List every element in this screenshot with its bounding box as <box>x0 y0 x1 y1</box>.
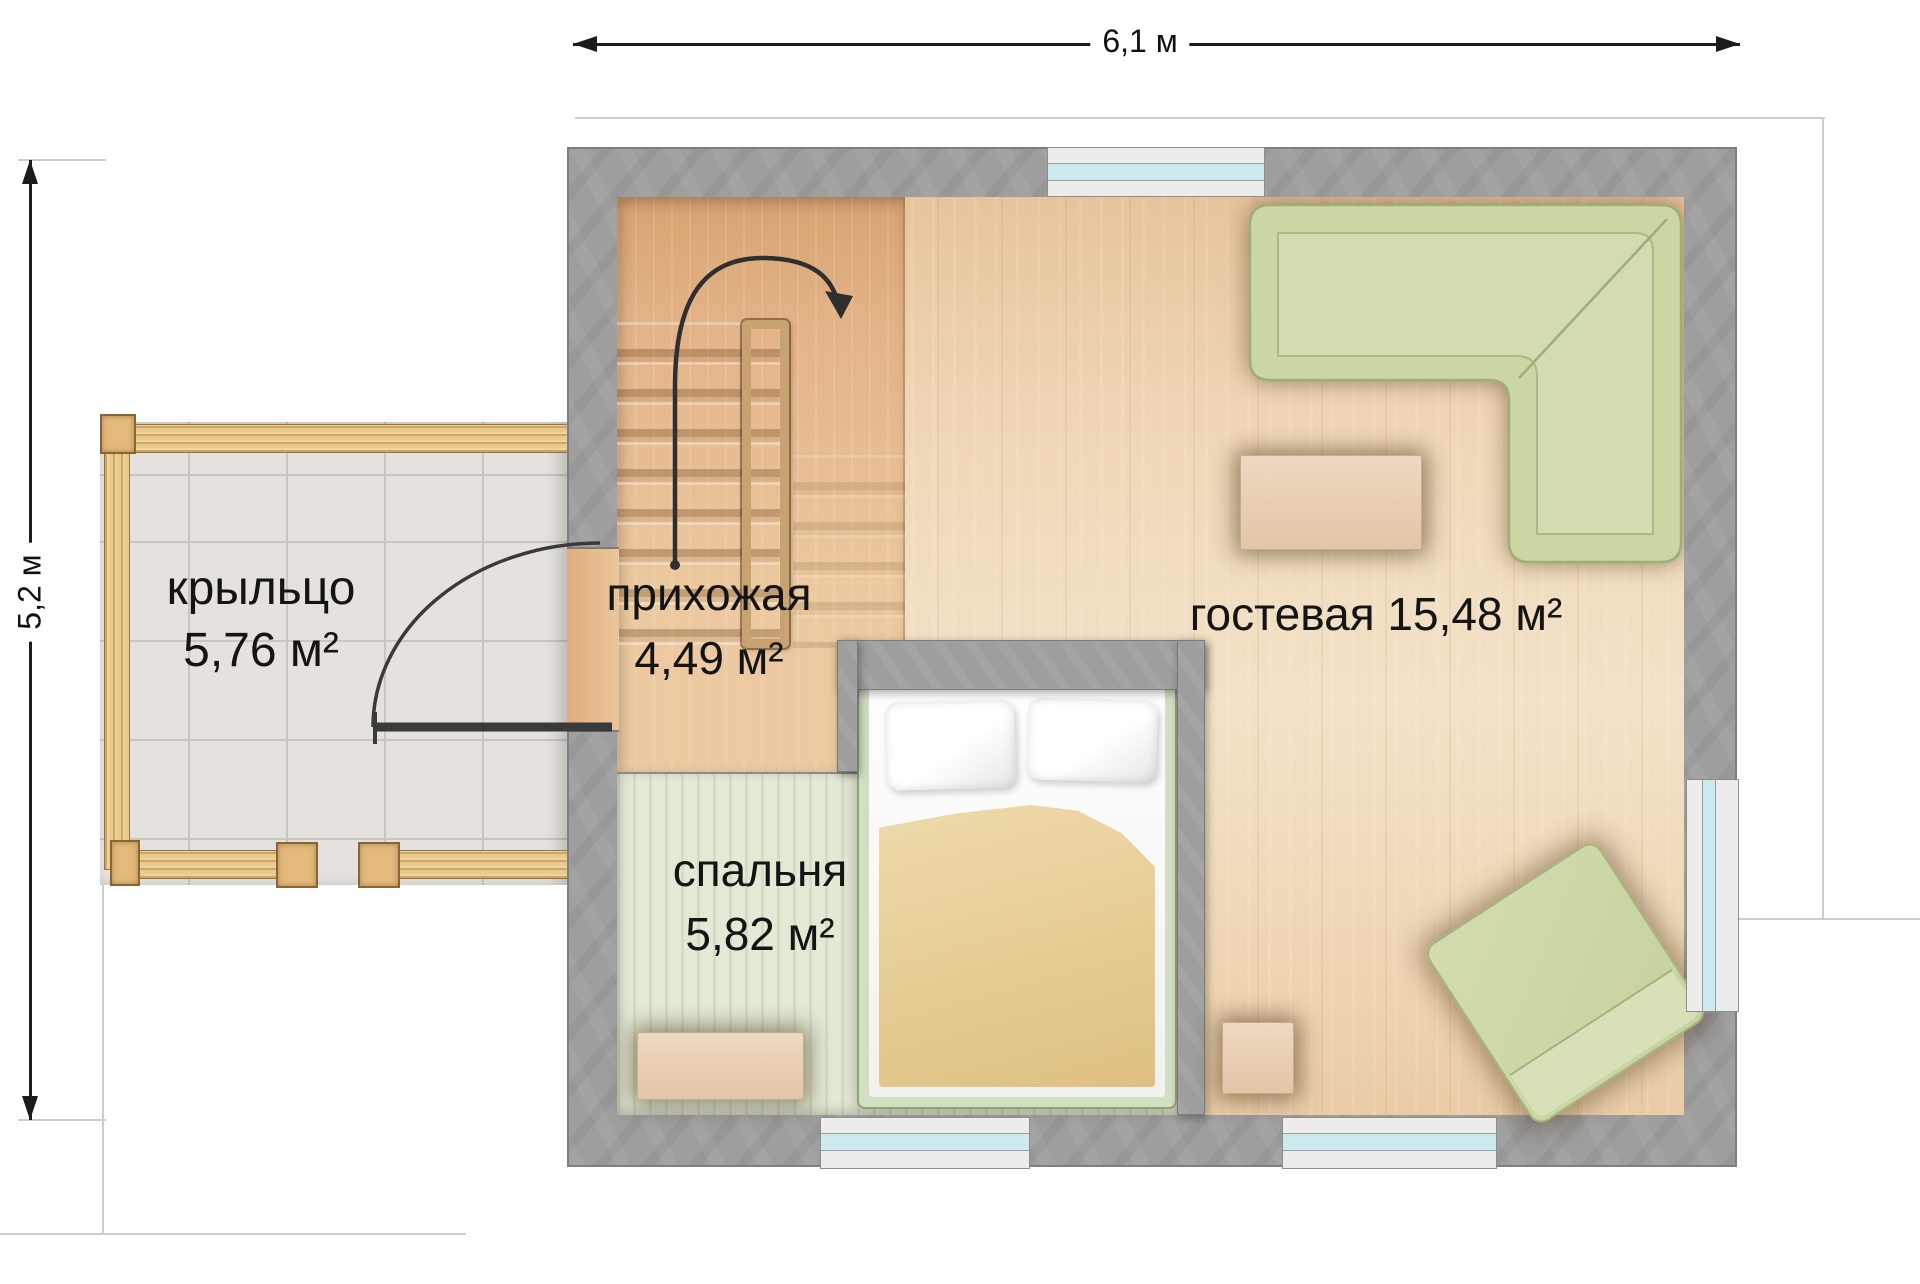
interior-wall <box>1177 640 1205 1115</box>
coffee-table <box>1240 455 1422 550</box>
pillow <box>1026 697 1158 782</box>
porch-post <box>110 840 140 886</box>
porch-post <box>100 414 136 454</box>
extension-line <box>1737 918 1920 920</box>
room-label-bedroom: спальня 5,82 м² <box>673 838 848 966</box>
living-name: гостевая <box>1190 588 1375 640</box>
extension-line <box>575 117 1825 119</box>
pillow <box>884 699 1016 790</box>
extension-line <box>0 1233 466 1235</box>
arrow-left-icon <box>573 36 597 52</box>
extension-line <box>1822 117 1824 920</box>
porch-railing-bottom-right <box>396 850 569 879</box>
porch-railing-top <box>114 424 569 453</box>
room-label-porch: крыльцо 5,76 м² <box>167 558 356 682</box>
bed-mattress <box>869 687 1165 1097</box>
hallway-area: 4,49 м² <box>606 626 811 690</box>
window <box>1047 147 1265 197</box>
porch-post <box>276 842 318 888</box>
bed <box>857 675 1177 1109</box>
arrow-right-icon <box>1716 36 1740 52</box>
window <box>1282 1117 1497 1169</box>
bedroom-area: 5,82 м² <box>673 902 848 966</box>
arrow-up-icon <box>22 160 38 184</box>
interior-wall <box>837 640 1205 690</box>
interior-wall <box>837 640 858 772</box>
porch-post <box>358 842 400 888</box>
hallway-name: прихожая <box>606 562 811 626</box>
extension-line <box>102 885 104 1235</box>
bedroom-name: спальня <box>673 838 848 902</box>
dimension-height-label: 5,2 м <box>12 542 49 641</box>
dimension-width-label: 6,1 м <box>1090 23 1189 60</box>
room-label-hallway: прихожая 4,49 м² <box>606 562 811 690</box>
porch-railing-left <box>104 448 130 870</box>
bed-blanket <box>879 805 1155 1087</box>
window <box>820 1117 1030 1169</box>
arrow-down-icon <box>22 1096 38 1120</box>
side-table <box>1222 1022 1294 1094</box>
living-area: 15,48 м² <box>1387 588 1562 640</box>
porch-area: 5,76 м² <box>167 620 356 682</box>
floor-plan: 6,1 м 5,2 м <box>0 0 1920 1284</box>
window <box>1686 779 1739 1012</box>
bedroom-dresser <box>637 1032 804 1100</box>
porch-railing-bottom-left <box>126 850 284 879</box>
porch-name: крыльцо <box>167 558 356 620</box>
room-label-living: гостевая 15,48 м² <box>1190 582 1563 646</box>
